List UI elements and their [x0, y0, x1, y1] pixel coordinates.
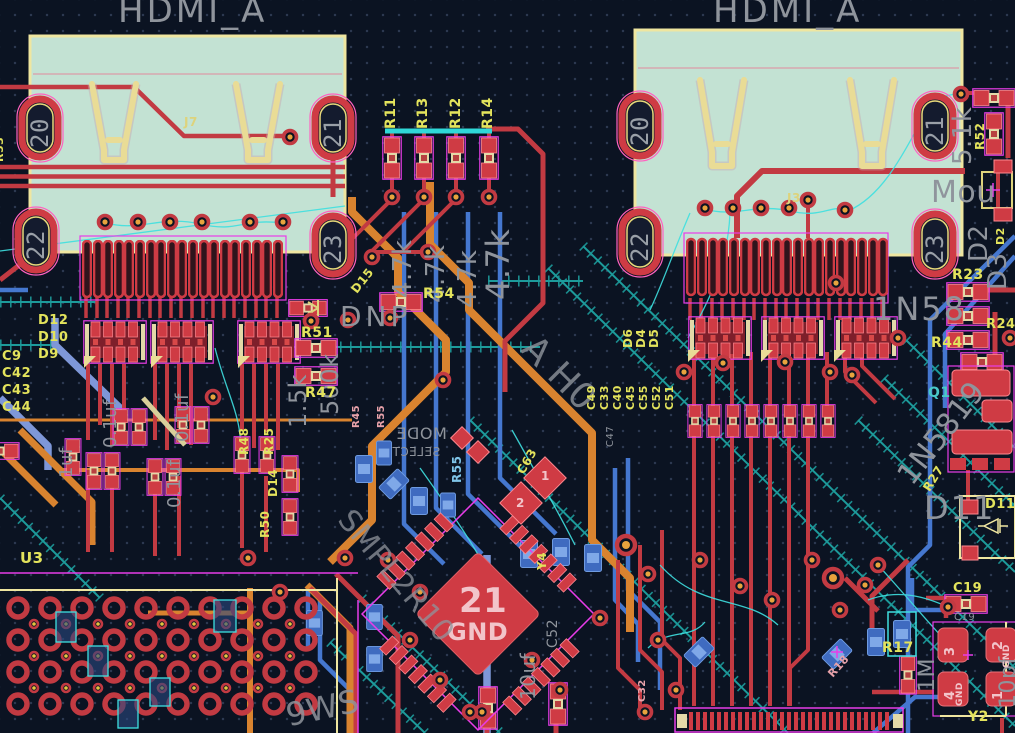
hdmi-connector-left[interactable] — [30, 36, 345, 252]
ref-r23[interactable]: R23 — [952, 268, 984, 282]
ref-r47[interactable]: R47 — [305, 386, 337, 400]
ref-y4[interactable]: Y4 — [536, 552, 548, 570]
ref-r54[interactable]: R54 — [423, 287, 455, 301]
ref-c45[interactable]: C45 — [625, 385, 636, 410]
ref-c55[interactable]: C55 — [638, 385, 649, 410]
value-1u[interactable]: 1uf — [58, 447, 76, 478]
ref-c33[interactable]: C33 — [599, 385, 610, 410]
fab-c47[interactable]: C47 — [606, 426, 616, 447]
ref-r50[interactable]: R50 — [259, 511, 271, 538]
ref-r44[interactable]: R44 — [931, 336, 963, 350]
ref-d11[interactable]: D11 — [985, 498, 1015, 511]
ref-c49[interactable]: C49 — [586, 385, 597, 410]
ref-j7[interactable]: J7 — [184, 116, 198, 128]
value-1m[interactable]: 1M — [917, 658, 939, 692]
fab-dnp[interactable]: DNP — [340, 303, 411, 331]
pad-number: 21 — [923, 116, 947, 146]
pad-name-gnd: GND — [1003, 644, 1012, 668]
fab-c52[interactable]: C52 — [546, 619, 560, 648]
ref-c40[interactable]: C40 — [612, 385, 623, 410]
ref-r48[interactable]: R48 — [238, 428, 250, 455]
pad-number-1: 1 — [992, 690, 1005, 700]
ref-r11[interactable]: R11 — [384, 97, 398, 129]
ref-c9[interactable]: C9 — [2, 350, 22, 363]
ref-c32[interactable]: C32 — [638, 679, 648, 702]
ref-d5[interactable]: D5 — [648, 329, 660, 348]
ref-d2[interactable]: D2 — [995, 227, 1006, 245]
bottom-edge-connector[interactable] — [675, 708, 903, 732]
ref-c44[interactable]: C44 — [2, 401, 31, 414]
ref-r24[interactable]: R24 — [986, 318, 1015, 331]
qfn-pad-number: 21 — [459, 584, 507, 618]
ref-r55[interactable]: R55 — [451, 456, 463, 483]
value-5k1[interactable]: 5.1k — [950, 107, 976, 165]
pad-number-3: 3 — [944, 646, 957, 656]
pad-number: 23 — [321, 234, 345, 264]
value-0u1[interactable]: 0.1uf — [166, 459, 184, 508]
ref-c43[interactable]: C43 — [2, 384, 31, 397]
ref-r14[interactable]: R14 — [481, 97, 495, 129]
fab-select[interactable]: SELECT — [392, 446, 440, 458]
ref-d9[interactable]: D9 — [38, 348, 59, 361]
value-4k7[interactable]: 4.7k — [482, 229, 514, 300]
pad-number: 20 — [28, 118, 52, 148]
pad-number: 21 — [321, 118, 345, 148]
connector-title-left[interactable]: HDMI_A — [118, 0, 267, 28]
ref-r13[interactable]: R13 — [416, 97, 430, 129]
pad-number: 20 — [628, 116, 652, 146]
value-1n58[interactable]: 1N58 — [873, 293, 966, 325]
pad-number: 22 — [628, 232, 652, 262]
pad-number-2: 2 — [516, 497, 525, 509]
value-0u1[interactable]: 0.1uf — [174, 393, 192, 442]
ref-c52b[interactable]: C52 — [651, 385, 662, 410]
pad-number: 22 — [24, 230, 48, 260]
pcb-canvas: HDMI_A HDMI_A J7 J3 20 21 22 23 20 21 22… — [0, 0, 1015, 733]
pad-number-1: 1 — [541, 470, 550, 482]
fab-mode[interactable]: MODE — [396, 426, 447, 442]
fab-c19[interactable]: C19 — [954, 613, 975, 623]
ref-r17[interactable]: R17 — [882, 641, 914, 655]
fab-d3[interactable]: D3 — [985, 252, 1011, 290]
ref-j3[interactable]: J3 — [787, 192, 801, 204]
ref-r55b[interactable]: R55 — [377, 405, 387, 428]
pad-number: 23 — [923, 234, 947, 264]
value-0u1[interactable]: 0.1uf — [102, 399, 120, 448]
ref-d4[interactable]: D4 — [635, 329, 647, 348]
bga-grid-u3[interactable] — [9, 599, 315, 728]
connector-title-right[interactable]: HDMI_A — [713, 0, 862, 28]
ref-d6[interactable]: D6 — [622, 329, 634, 348]
ref-d14[interactable]: D14 — [267, 469, 279, 497]
ref-d12[interactable]: D12 — [38, 314, 68, 327]
ref-c51[interactable]: C51 — [664, 385, 675, 410]
ref-c19[interactable]: C19 — [953, 582, 982, 595]
ref-y2[interactable]: Y2 — [968, 710, 989, 724]
value-10uf[interactable]: 10uf — [518, 653, 538, 700]
value-4k7[interactable]: 4.7k — [455, 250, 481, 308]
value-4k7[interactable]: 4.7k — [390, 240, 416, 298]
pad-name-gnd: GND — [956, 682, 965, 706]
fab-mounting[interactable]: Mou — [931, 178, 996, 208]
ref-d10[interactable]: D10 — [38, 331, 68, 344]
ref-r53[interactable]: R53 — [0, 137, 5, 162]
ref-u3[interactable]: U3 — [20, 551, 44, 566]
ref-r45[interactable]: R45 — [352, 405, 362, 428]
ref-c42[interactable]: C42 — [2, 367, 31, 380]
ref-r25[interactable]: R25 — [263, 428, 275, 455]
ref-r51[interactable]: R51 — [301, 326, 333, 340]
ref-r12[interactable]: R12 — [449, 97, 463, 129]
